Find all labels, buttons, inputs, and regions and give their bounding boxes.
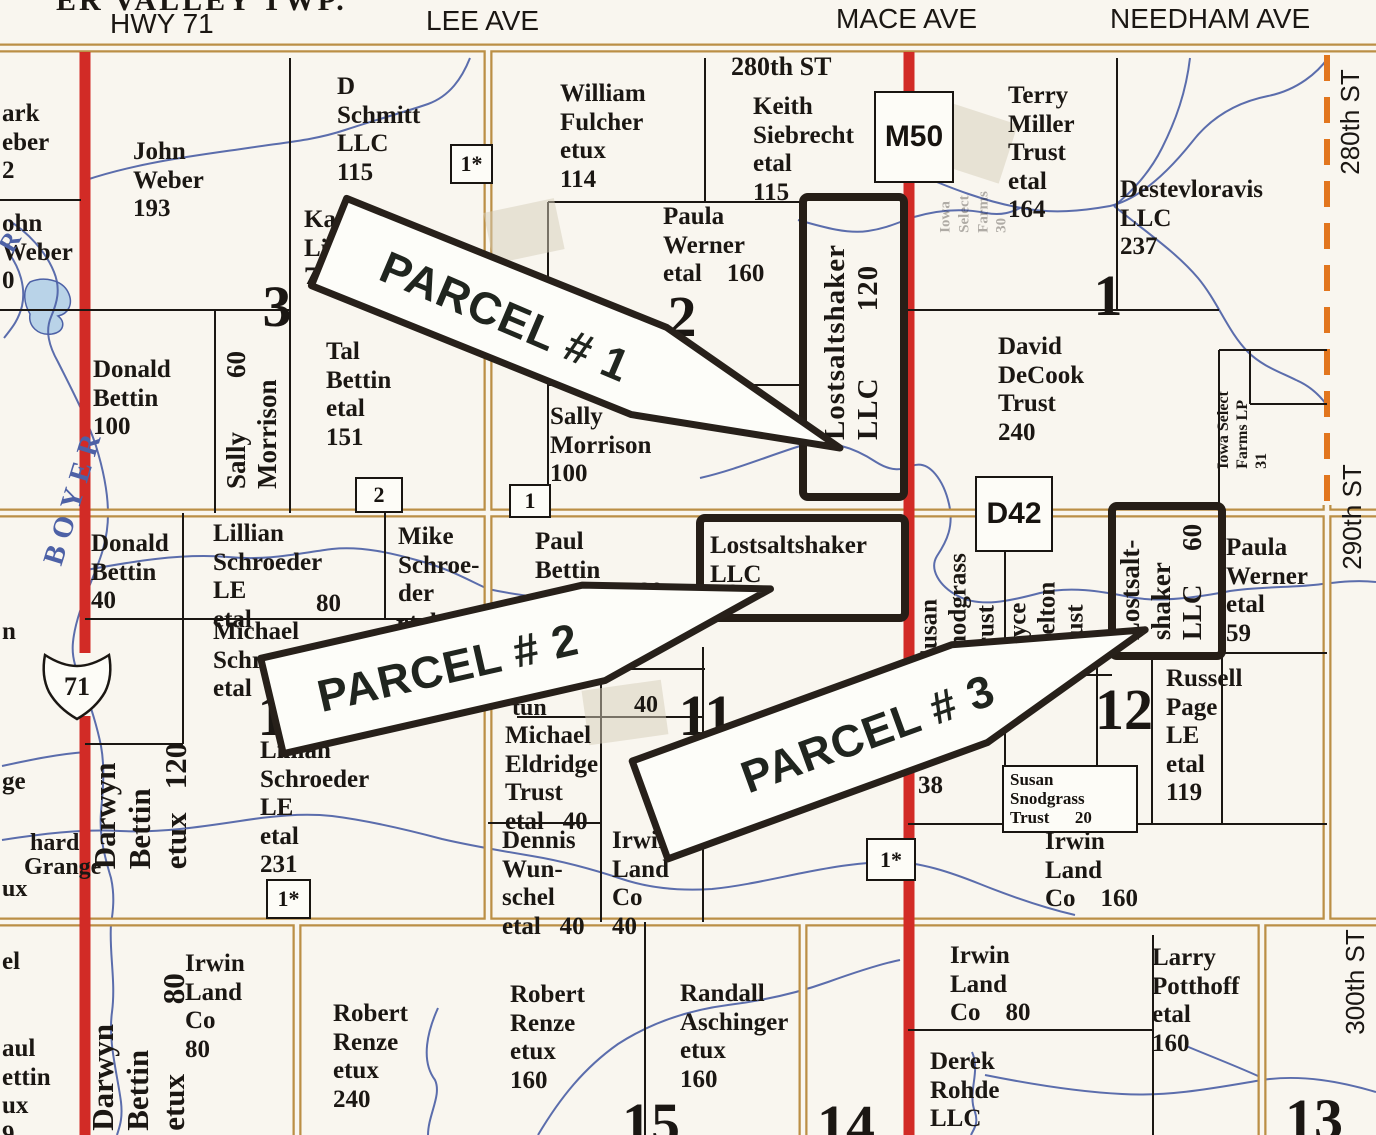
parcel-3-arrow-label: PARCEL # 3 bbox=[734, 664, 1002, 804]
parcel-1-arrow-label: PARCEL # 1 bbox=[372, 241, 637, 393]
plat-map: M50D421*1*1*21Susan Snodgrass Trust 20 E… bbox=[0, 0, 1376, 1135]
parcel-arrow-labels-layer: PARCEL # 1PARCEL # 2PARCEL # 3 bbox=[0, 0, 1376, 1135]
parcel-2-arrow-label: PARCEL # 2 bbox=[313, 613, 584, 723]
